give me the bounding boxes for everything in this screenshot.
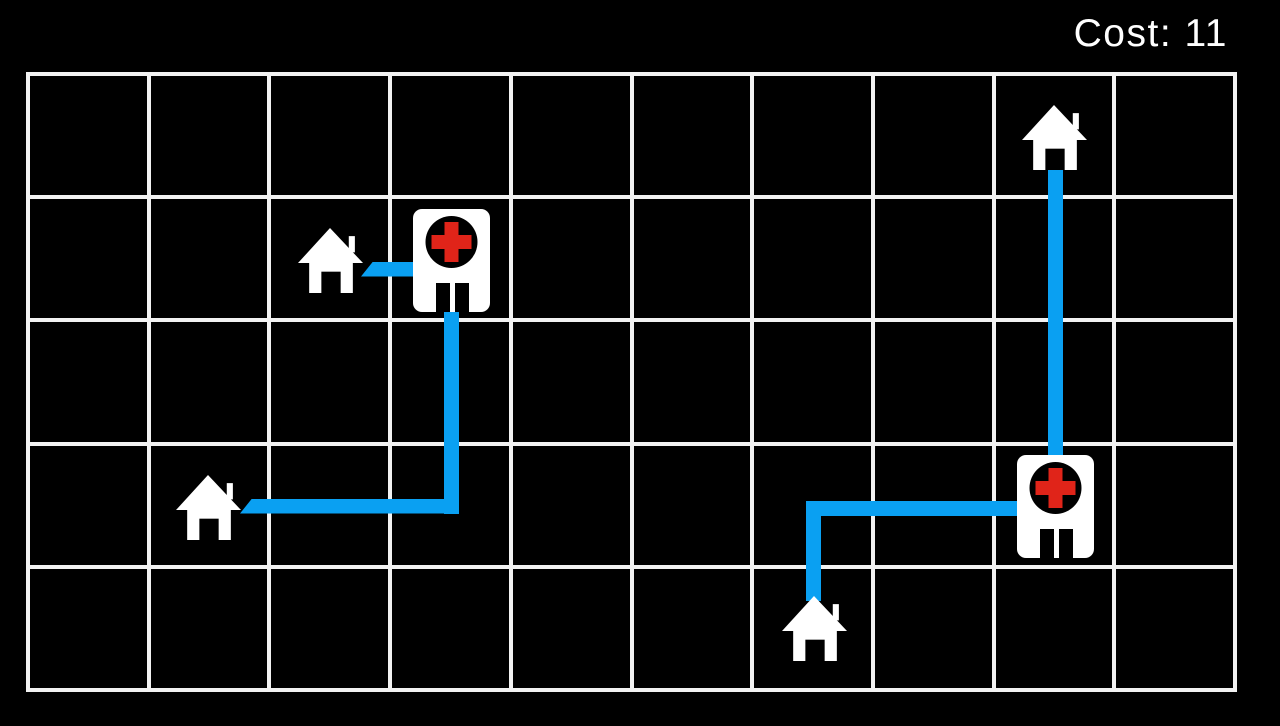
house-mid[interactable] bbox=[298, 228, 363, 293]
grid-line-vertical bbox=[147, 72, 151, 692]
house-bottom[interactable] bbox=[782, 596, 847, 661]
grid-line-vertical bbox=[26, 72, 30, 692]
hospital-b[interactable] bbox=[1017, 455, 1094, 558]
road-segment[interactable] bbox=[806, 501, 821, 602]
game-canvas[interactable]: Cost: 11 bbox=[0, 0, 1280, 726]
house-left[interactable] bbox=[176, 475, 241, 540]
grid-line-vertical bbox=[750, 72, 754, 692]
grid-line-vertical bbox=[509, 72, 513, 692]
grid-line-vertical bbox=[267, 72, 271, 692]
grid-line-vertical bbox=[388, 72, 392, 692]
house-icon bbox=[1022, 105, 1087, 170]
grid-line-horizontal bbox=[26, 688, 1237, 692]
cost-value: 11 bbox=[1185, 12, 1229, 55]
grid-line-horizontal bbox=[26, 565, 1237, 569]
grid-line-vertical bbox=[630, 72, 634, 692]
house-icon bbox=[782, 596, 847, 661]
cost-label: Cost: bbox=[1074, 12, 1185, 55]
grid-line-vertical bbox=[1112, 72, 1116, 692]
house-icon bbox=[298, 228, 363, 293]
hospital-a[interactable] bbox=[413, 209, 490, 312]
hospital-icon bbox=[1017, 455, 1094, 558]
house-icon bbox=[176, 475, 241, 540]
hospital-icon bbox=[413, 209, 490, 312]
road-segment[interactable] bbox=[1048, 137, 1063, 506]
road-segment[interactable] bbox=[240, 499, 459, 514]
house-top[interactable] bbox=[1022, 105, 1087, 170]
grid-line-vertical bbox=[1233, 72, 1237, 692]
grid-line-horizontal bbox=[26, 72, 1237, 76]
grid-line-vertical bbox=[992, 72, 996, 692]
cost-display: Cost: 11 bbox=[1074, 12, 1228, 56]
grid-line-vertical bbox=[871, 72, 875, 692]
